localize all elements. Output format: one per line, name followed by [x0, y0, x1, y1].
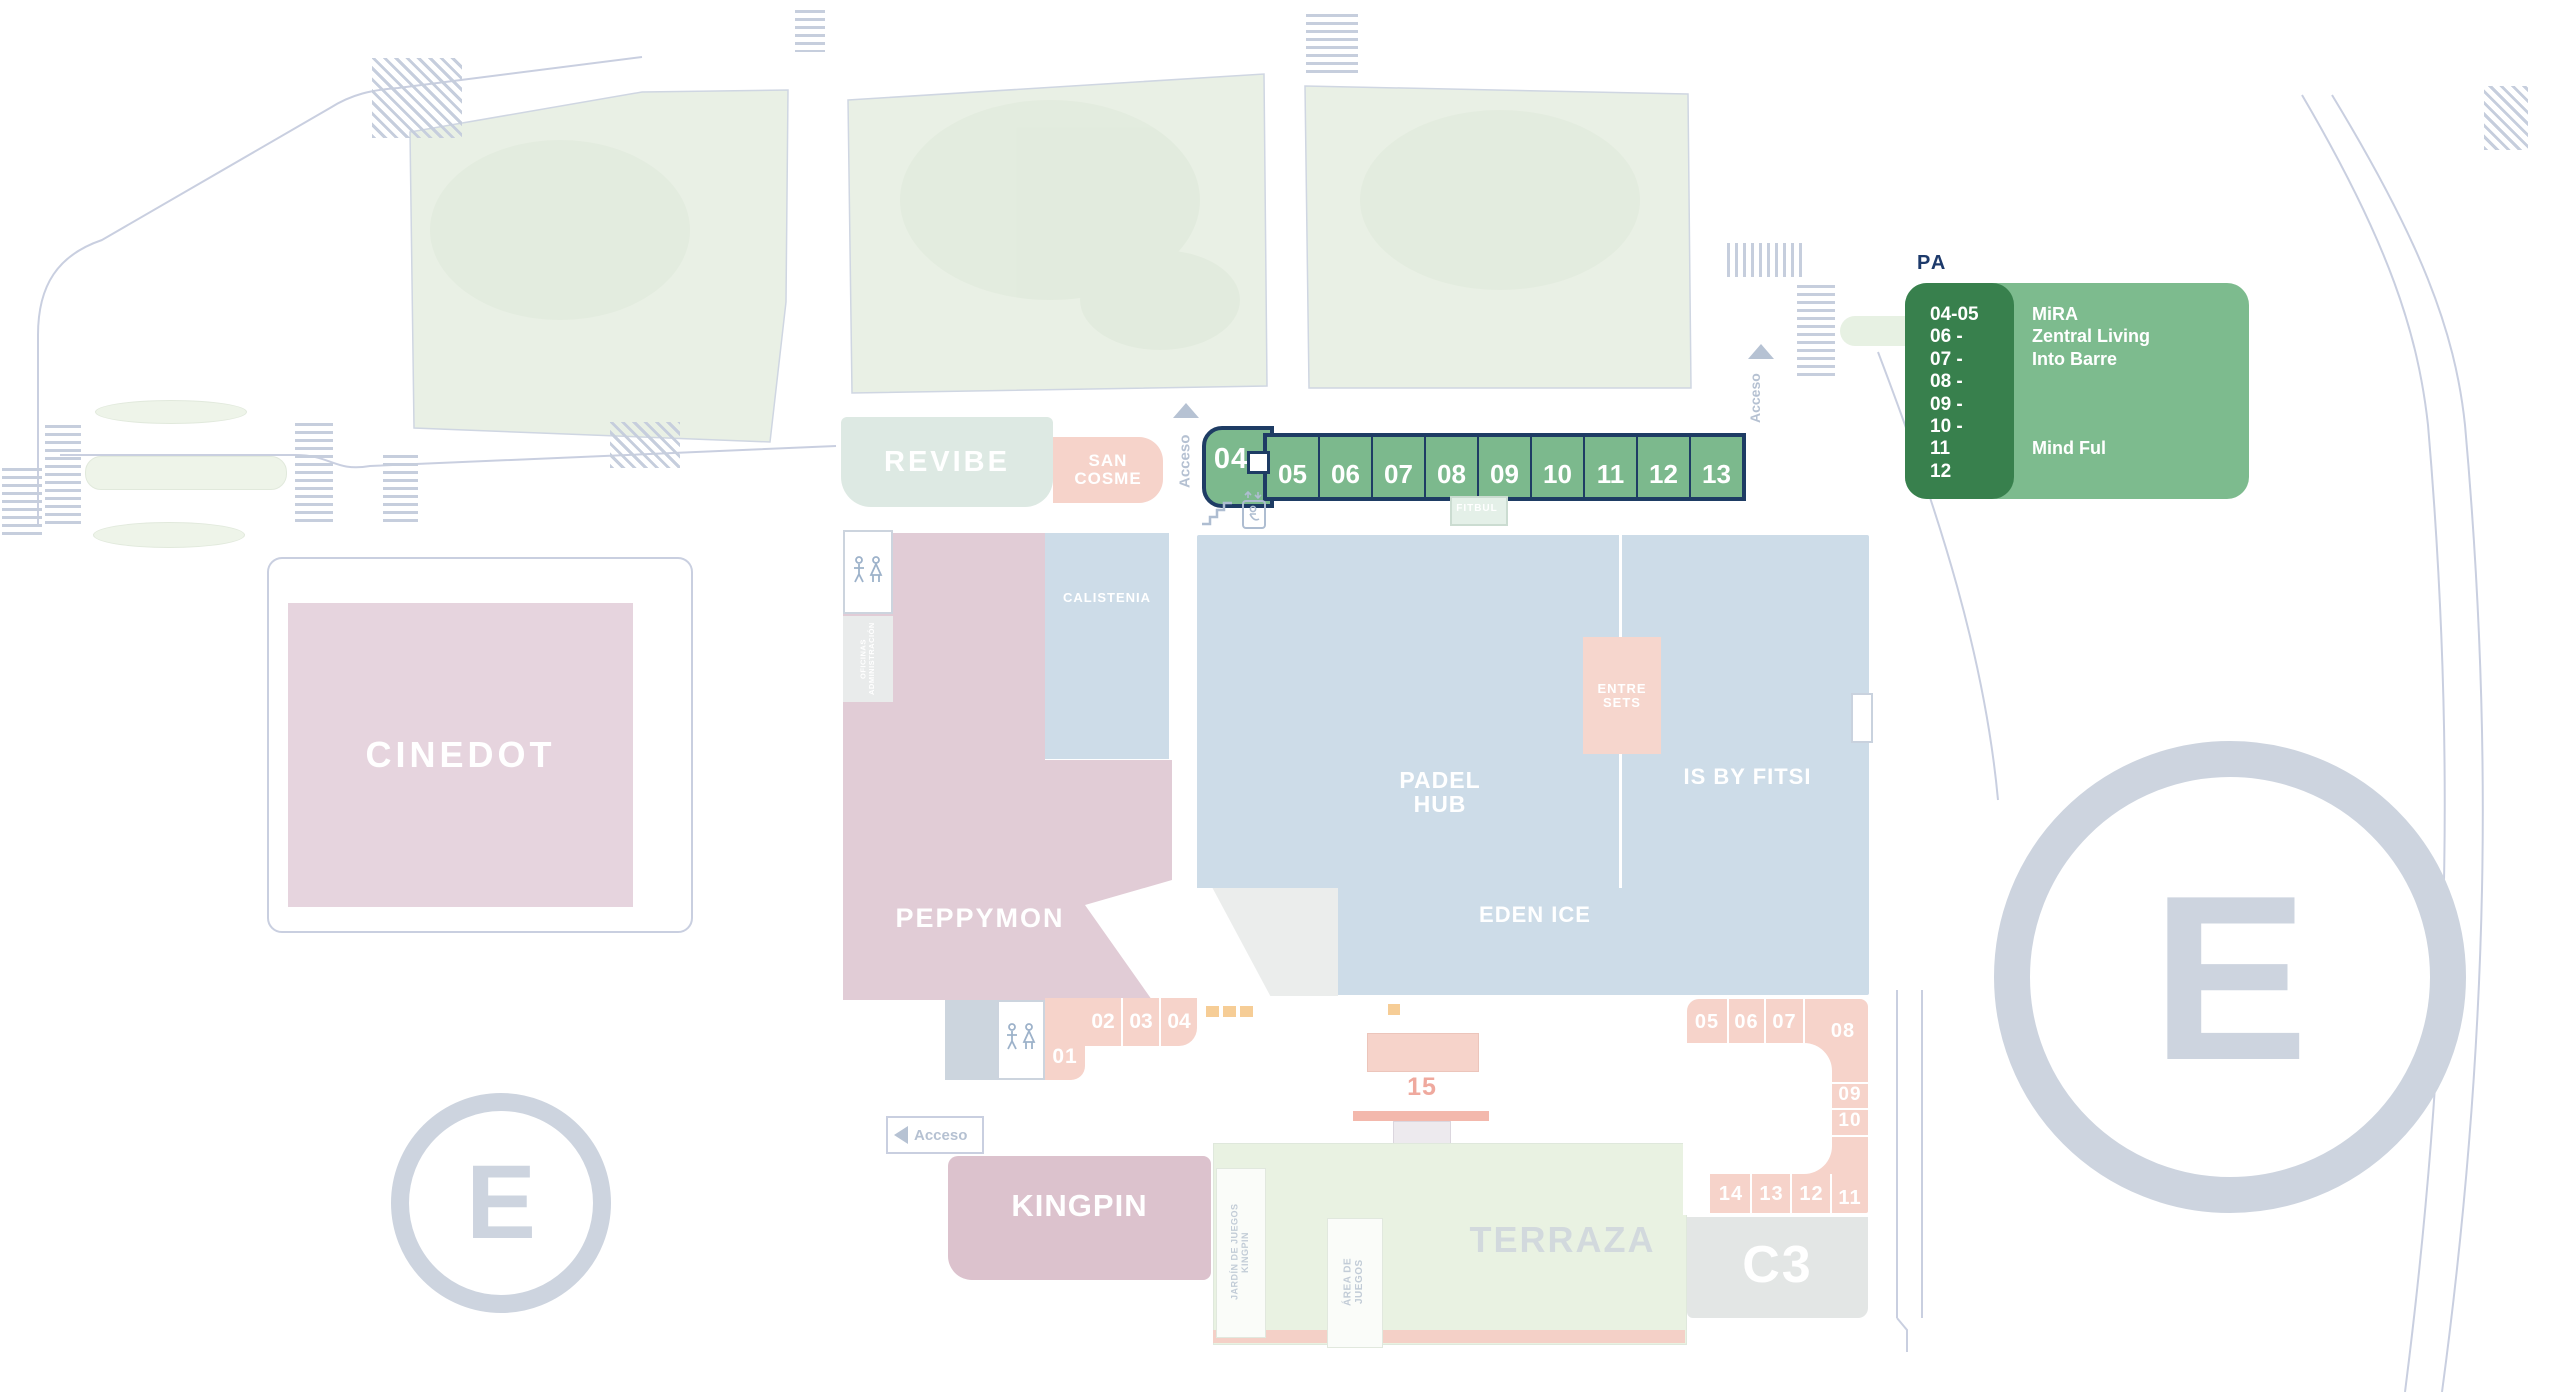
area-juegos-label: ÁREA DE JUEGOS [1327, 1218, 1381, 1346]
stairs-icon [1200, 496, 1234, 526]
legend-num: 06 - [1930, 326, 2010, 348]
crosswalk-hatch [1306, 14, 1358, 74]
store-san-cosme-label: SAN COSME [1053, 437, 1163, 503]
legend-num: 12 [1930, 461, 2010, 483]
crosswalk-hatch [372, 58, 462, 138]
legend-pa-label: PA [1905, 250, 1967, 276]
service-grey-box [945, 1000, 997, 1080]
jardin-juegos-label: JARDÍN DE JUEGOS KINGPIN [1216, 1168, 1264, 1336]
unit-04-door-notch [1247, 451, 1270, 474]
planter [85, 456, 287, 490]
acceso-label-bottom: Acceso [914, 1127, 967, 1144]
kiosk-15-label: 15 [1372, 1074, 1472, 1100]
store-cinedot-label: CINEDOT [288, 735, 633, 775]
planter [95, 400, 247, 424]
store-calistenia-label: CALISTENIA [1045, 583, 1169, 613]
legend-name [2032, 394, 2242, 416]
store-revibe-label: REVIBE [841, 417, 1053, 507]
crosswalk-hatch [1797, 285, 1835, 377]
bench [1223, 1006, 1236, 1017]
legend-num: 09 - [1930, 394, 2010, 416]
store-eden-ice-label: EDEN ICE [1460, 900, 1610, 930]
crosswalk-hatch [2484, 86, 2528, 150]
store-is-by-fitsi-label: IS BY FITSI [1650, 762, 1845, 792]
store-entre-sets-label: ENTRE SETS [1583, 637, 1661, 754]
parking-circle-right: E [1994, 741, 2466, 1213]
unit-r14-label: 14 [1712, 1181, 1750, 1207]
unit-06[interactable]: 06 [1318, 437, 1371, 497]
unit-divider [1790, 1174, 1792, 1213]
crosswalk-hatch [795, 10, 825, 52]
acceso-arrow-left-icon [894, 1126, 908, 1144]
unit-r05-label: 05 [1687, 1008, 1727, 1036]
elevator-icon [1240, 490, 1268, 530]
unit-10[interactable]: 10 [1530, 437, 1583, 497]
units-02-04-block[interactable]: 02 03 04 [1085, 998, 1197, 1046]
mall-floorplan-map: E E REVIBE SAN COSME Acceso 04 05 06 07 … [0, 0, 2560, 1392]
courtyard-left-gap [1683, 1043, 1710, 1215]
parking-letter: E [466, 1143, 536, 1263]
terraza-edge [1213, 1330, 1685, 1343]
unit-12[interactable]: 12 [1636, 437, 1689, 497]
crosswalk-hatch [295, 423, 333, 523]
legend-num: 07 - [1930, 349, 2010, 371]
unit-r12-label: 12 [1793, 1181, 1830, 1207]
store-kingpin-label: KINGPIN [948, 1186, 1211, 1226]
acceso-label-top: Acceso [1172, 422, 1198, 500]
legend-name: Zentral Living [2032, 326, 2242, 348]
legend-unit-numbers: 04-05 06 - 07 - 08 - 09 - 10 - 11 12 [1930, 304, 2010, 483]
unit-divider [1832, 1135, 1868, 1137]
legend-store-names: MiRA Zentral Living Into Barre Mind Ful [2032, 304, 2242, 483]
kiosk-15-counter [1353, 1111, 1489, 1121]
unit-r09-label: 09 [1832, 1082, 1868, 1108]
acceso-label-right: Acceso [1742, 362, 1768, 434]
legend-num: 04-05 [1930, 304, 2010, 326]
unit-r08-label: 08 [1820, 1017, 1866, 1045]
crosswalk-hatch [610, 422, 680, 468]
store-calistenia[interactable] [1045, 533, 1169, 759]
bench [1206, 1006, 1219, 1017]
unit-divider [1750, 1174, 1752, 1213]
unit-r06-label: 06 [1729, 1008, 1764, 1036]
crosswalk-hatch [45, 425, 81, 525]
unit-09[interactable]: 09 [1477, 437, 1530, 497]
unit-11[interactable]: 11 [1583, 437, 1636, 497]
legend-name [2032, 461, 2242, 483]
crosswalk-hatch [383, 455, 418, 525]
legend-name: Into Barre [2032, 349, 2242, 371]
utility-box [1851, 693, 1873, 743]
unit-row-05-13[interactable]: 05 06 07 08 09 10 11 12 13 [1263, 433, 1746, 501]
unit-03[interactable]: 03 [1121, 998, 1159, 1046]
offices-label: OFICINAS ADMINISTRACIÓN [843, 616, 893, 702]
planter [93, 522, 245, 548]
kiosk-15-block[interactable] [1367, 1033, 1479, 1072]
bench [1240, 1006, 1253, 1017]
legend-name [2032, 416, 2242, 438]
store-peppymon-label: PEPPYMON [870, 900, 1090, 936]
unit-13[interactable]: 13 [1689, 437, 1742, 497]
unit-04b[interactable]: 04 [1159, 998, 1197, 1046]
bench [1388, 1004, 1400, 1015]
legend-name [2032, 371, 2242, 393]
unit-divider [1803, 999, 1805, 1043]
store-fitbul-label: FITBUL [1450, 496, 1504, 522]
parking-circle-left: E [391, 1093, 611, 1313]
unit-r07-label: 07 [1766, 1008, 1803, 1036]
terraza-label: TERRAZA [1445, 1218, 1680, 1262]
restroom-icon-lower [1003, 1022, 1039, 1052]
unit-02[interactable]: 02 [1085, 998, 1121, 1046]
parking-letter: E [2152, 842, 2309, 1113]
unit-08[interactable]: 08 [1424, 437, 1477, 497]
crosswalk-hatch [2, 468, 42, 540]
acceso-arrow-up-icon-right [1748, 344, 1774, 359]
acceso-box-bottom: Acceso [886, 1116, 984, 1154]
acceso-arrow-up-icon [1173, 403, 1199, 418]
legend-num: 10 - [1930, 416, 2010, 438]
unit-05[interactable]: 05 [1267, 437, 1318, 497]
unit-r10-label: 10 [1832, 1108, 1868, 1134]
legend-num: 11 [1930, 438, 2010, 460]
legend-name: MiRA [2032, 304, 2242, 326]
store-c3-label: C3 [1687, 1230, 1868, 1300]
crosswalk-hatch [1727, 243, 1802, 277]
store-padel-hub-label: PADEL HUB [1350, 760, 1530, 824]
unit-07[interactable]: 07 [1371, 437, 1424, 497]
unit-r11-label: 11 [1832, 1185, 1868, 1211]
legend-name: Mind Ful [2032, 438, 2242, 460]
restroom-icon [850, 555, 886, 585]
unit-r13-label: 13 [1753, 1181, 1790, 1207]
unit-01-label: 01 [1045, 1042, 1085, 1072]
legend-num: 08 - [1930, 371, 2010, 393]
